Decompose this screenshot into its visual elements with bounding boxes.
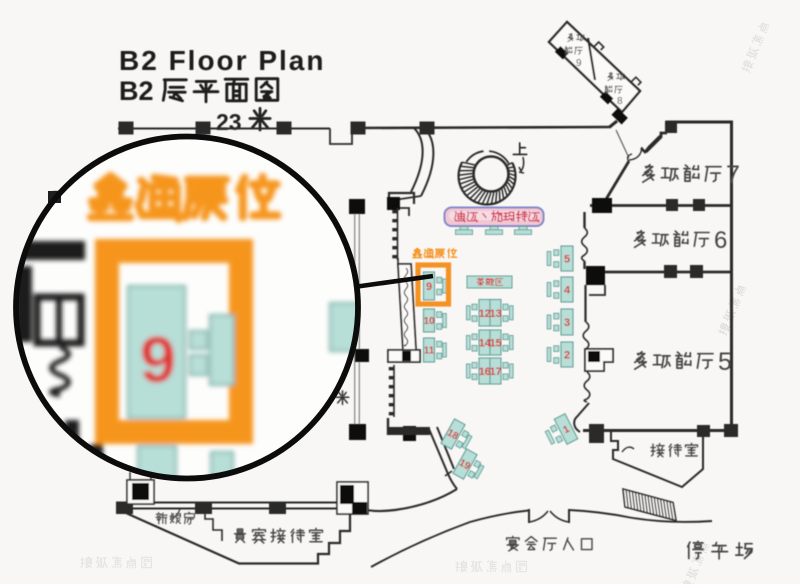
svg-text:17: 17	[489, 366, 501, 378]
svg-text:B2 Floor Plan: B2 Floor Plan	[119, 45, 325, 76]
svg-text:23: 23	[216, 109, 242, 135]
svg-text:8: 8	[617, 96, 623, 107]
svg-text:9: 9	[576, 58, 582, 69]
svg-text:4: 4	[564, 285, 571, 297]
svg-text:10: 10	[423, 316, 435, 327]
svg-text:B2: B2	[119, 76, 154, 106]
svg-text:2: 2	[564, 350, 570, 362]
svg-text:9: 9	[426, 281, 432, 293]
svg-text:13: 13	[489, 308, 501, 320]
svg-text:6: 6	[714, 227, 727, 254]
svg-text:11: 11	[424, 346, 435, 357]
svg-text:15: 15	[489, 338, 501, 350]
svg-text:5: 5	[564, 254, 570, 266]
svg-text:3: 3	[564, 317, 570, 329]
svg-text:5: 5	[718, 348, 732, 376]
svg-text:7: 7	[726, 161, 740, 189]
svg-text:9: 9	[140, 323, 176, 396]
